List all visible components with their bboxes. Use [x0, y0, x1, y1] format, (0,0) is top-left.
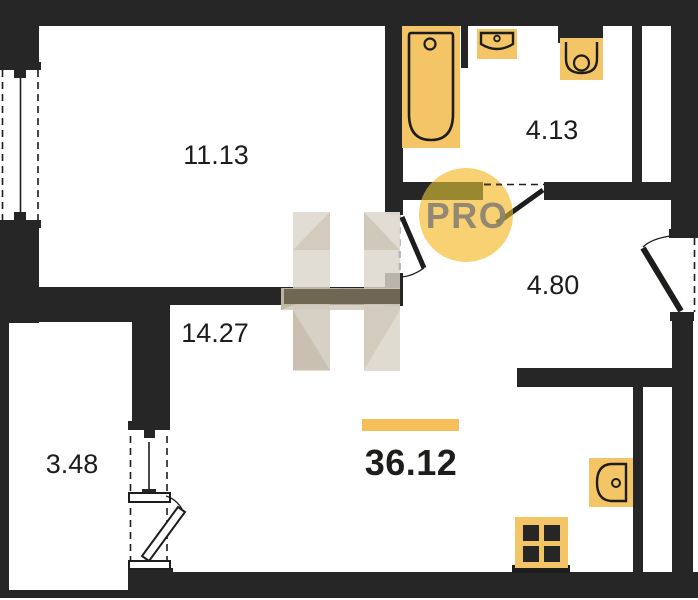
entrance-jamb-bottom — [670, 312, 694, 321]
balcony-mid-sill — [129, 493, 170, 502]
window-living-room — [3, 70, 39, 220]
balcony-bottom-sill — [129, 561, 170, 569]
room-label-living: 11.13 — [183, 140, 249, 170]
wall-right-upper — [671, 0, 698, 238]
wall-bath-bottom-right — [544, 182, 698, 200]
wall-right-lower — [672, 321, 693, 598]
wall-kitchen-shaft — [633, 387, 643, 572]
watermark-h-logo — [281, 212, 400, 371]
pro-badge: PRO — [418, 168, 544, 262]
wall-top — [0, 0, 698, 26]
wall-shaft-top — [632, 26, 642, 200]
wall-bottom — [170, 572, 698, 598]
toilet-icon — [560, 38, 603, 80]
window-sill-top — [0, 62, 41, 70]
floor-plan-canvas: PRO 11.13 4.13 4.80 14.27 3.48 36.12 — [0, 0, 698, 600]
floor-plan: PRO 11.13 4.13 4.80 14.27 3.48 36.12 — [0, 0, 698, 600]
wall-hallway-bottom — [517, 368, 673, 387]
wall-balcony-corner — [128, 568, 173, 594]
balcony-window-door — [129, 436, 185, 569]
wall-left-upper — [0, 0, 39, 63]
door-entrance — [643, 236, 695, 312]
wall-balcony-kitchen — [132, 322, 170, 429]
total-area-label: 36.12 — [365, 442, 458, 483]
stove-icon — [512, 517, 570, 573]
total-area-accent-bar — [362, 419, 459, 431]
washbasin-icon — [477, 29, 517, 59]
wall-balcony-left — [0, 322, 9, 598]
window-tab-bottom — [14, 212, 26, 220]
wall-balcony-top — [9, 287, 170, 322]
wall-tub-stub — [461, 26, 468, 68]
balcony-window-jamb — [128, 421, 170, 430]
fixtures — [402, 26, 633, 573]
bathtub-icon — [402, 26, 460, 148]
balcony-window-tab — [144, 430, 155, 438]
entrance-jamb-top — [669, 229, 694, 238]
balcony-door-leaf — [142, 507, 185, 561]
room-label-kitchen: 14.27 — [181, 318, 249, 348]
window-sill-bottom — [0, 220, 41, 228]
kitchen-sink-icon — [589, 458, 633, 507]
pro-badge-label: PRO — [426, 195, 509, 236]
window-tab-top — [14, 70, 26, 78]
room-label-bathroom: 4.13 — [526, 115, 579, 145]
room-label-balcony: 3.48 — [46, 449, 99, 479]
room-label-hallway: 4.80 — [527, 270, 580, 300]
watermark-wall-overlap — [284, 289, 400, 304]
